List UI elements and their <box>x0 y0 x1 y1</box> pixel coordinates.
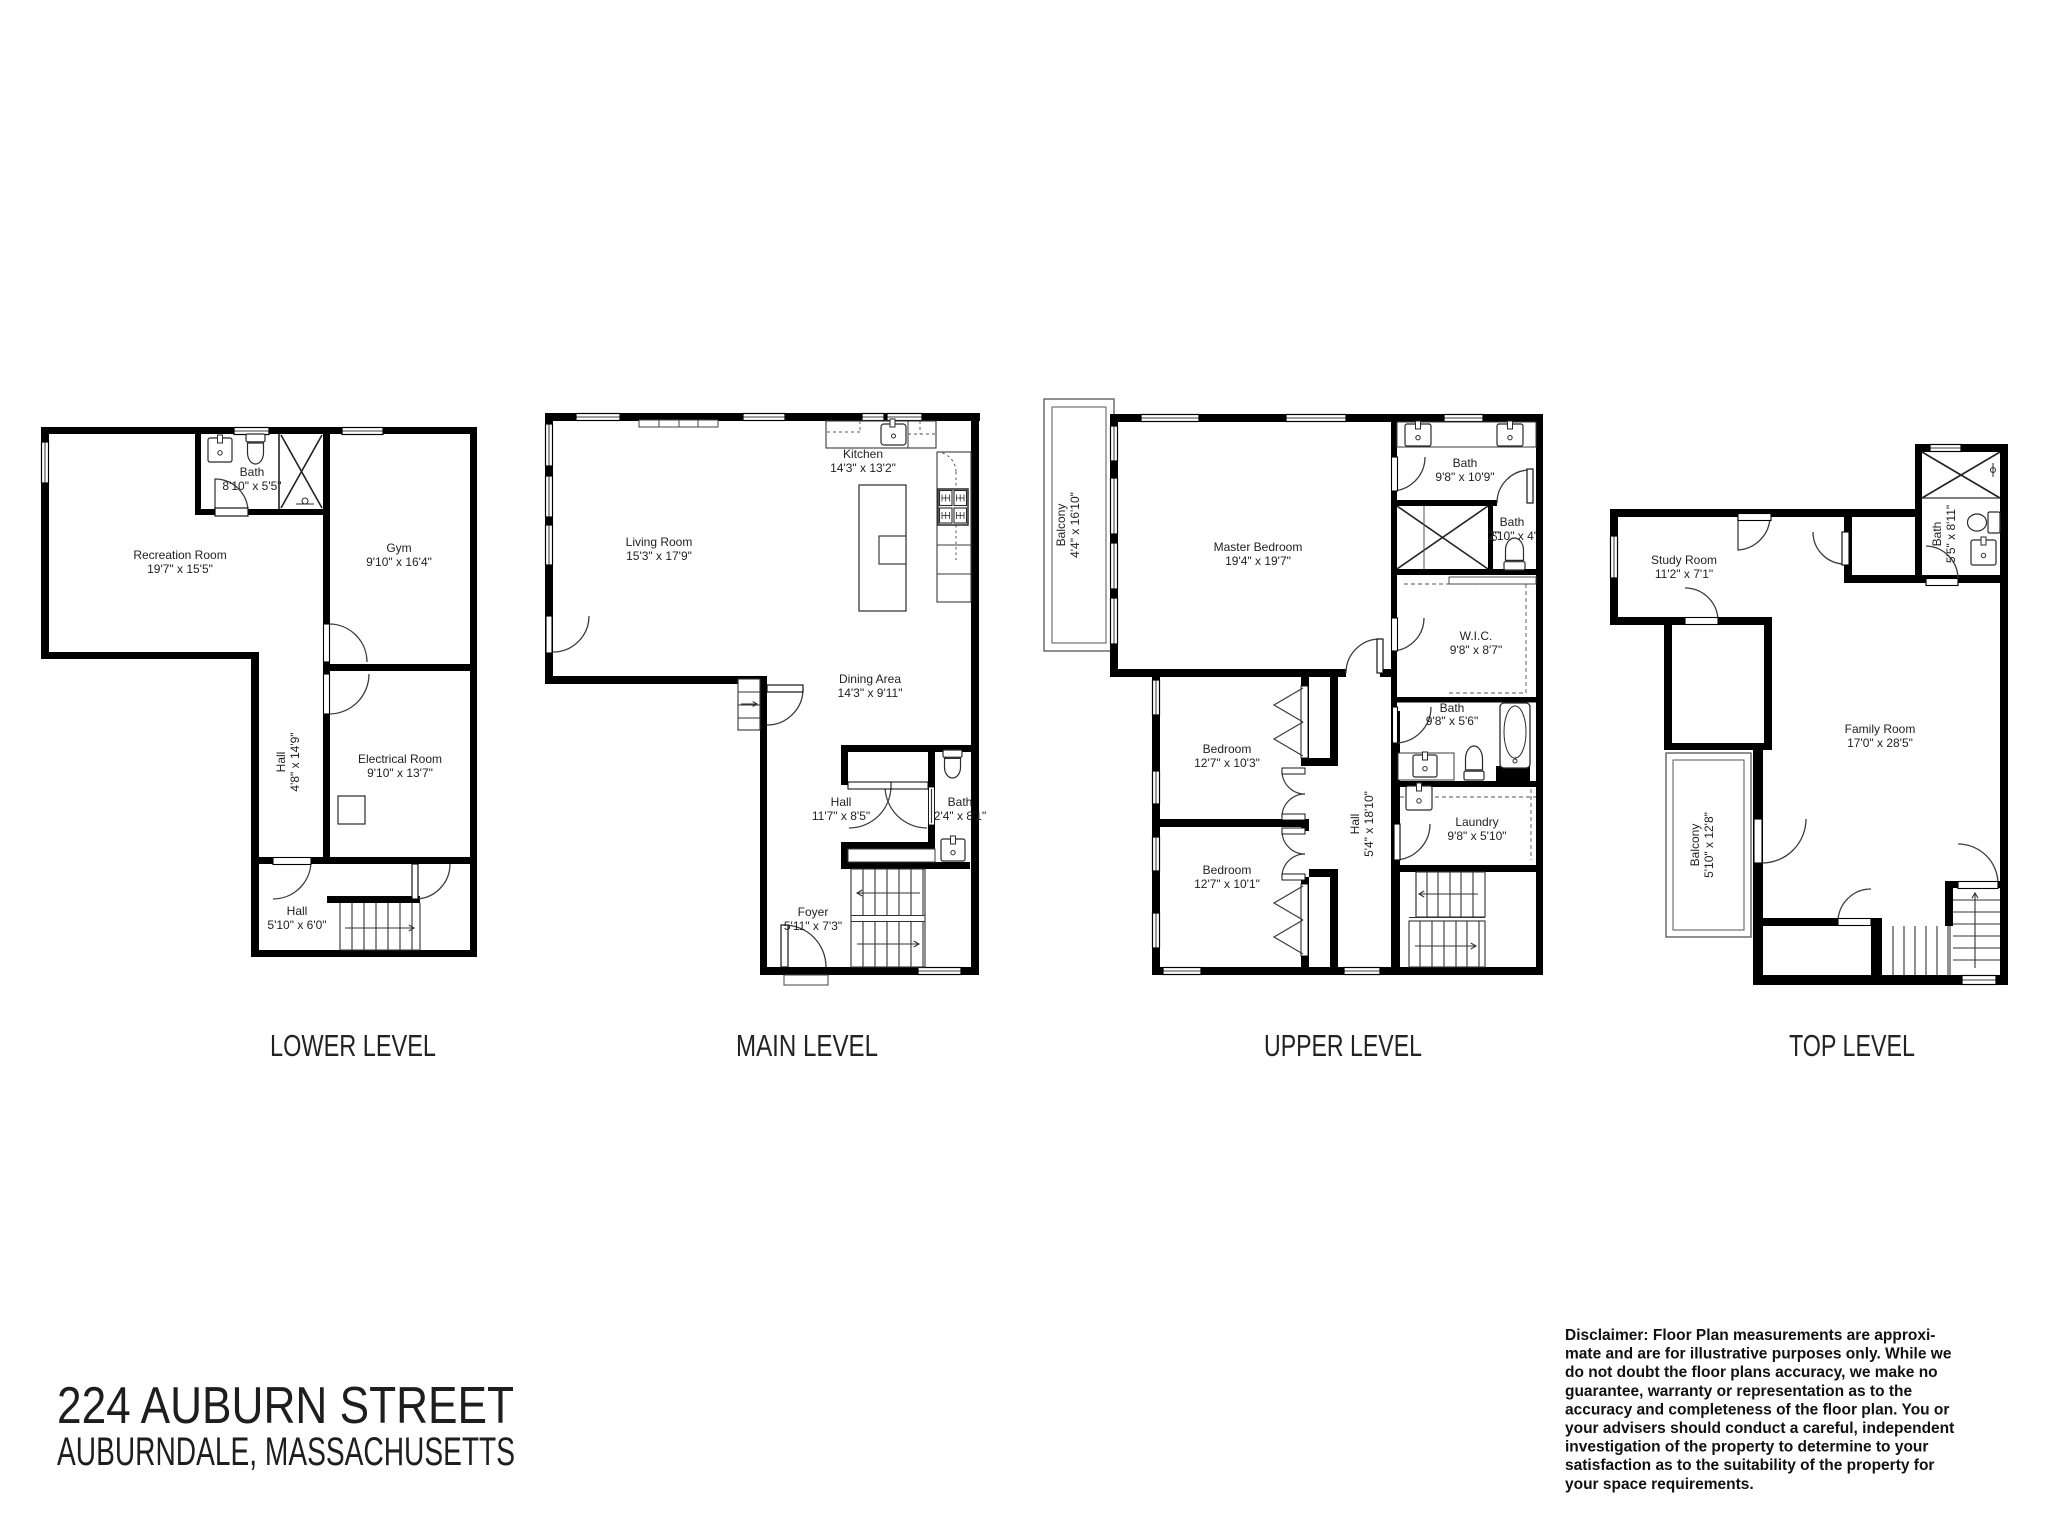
svg-text:LOWER LEVEL: LOWER LEVEL <box>270 1028 436 1063</box>
svg-text:5'10" x 6'0": 5'10" x 6'0" <box>267 918 326 932</box>
svg-text:5'4" x 18'10": 5'4" x 18'10" <box>1362 791 1376 857</box>
svg-text:2'10" x 4': 2'10" x 4' <box>1488 529 1536 543</box>
svg-text:9'8" x 5'10": 9'8" x 5'10" <box>1447 829 1506 843</box>
svg-text:4'8" x 14'9": 4'8" x 14'9" <box>288 732 302 791</box>
svg-text:11'2" x 7'1": 11'2" x 7'1" <box>1655 567 1713 581</box>
svg-text:do not doubt the floor plans a: do not doubt the floor plans accuracy, w… <box>1565 1364 1938 1381</box>
svg-text:19'4" x 19'7": 19'4" x 19'7" <box>1225 554 1291 568</box>
svg-text:Bath: Bath <box>1930 522 1944 547</box>
svg-text:UPPER LEVEL: UPPER LEVEL <box>1264 1028 1422 1063</box>
svg-text:14'3" x 9'11": 14'3" x 9'11" <box>838 686 903 700</box>
svg-text:Bath: Bath <box>1500 515 1525 529</box>
svg-text:investigation of the property: investigation of the property to determi… <box>1565 1439 1928 1456</box>
svg-text:Study Room: Study Room <box>1651 553 1717 567</box>
svg-text:Family Room: Family Room <box>1845 722 1916 736</box>
svg-text:satisfaction as to the suitabi: satisfaction as to the suitability of th… <box>1565 1457 1934 1474</box>
svg-text:MAIN LEVEL: MAIN LEVEL <box>736 1028 878 1063</box>
svg-text:Master Bedroom: Master Bedroom <box>1214 540 1303 554</box>
svg-text:2'4" x 8'1": 2'4" x 8'1" <box>934 809 986 823</box>
svg-text:Bedroom: Bedroom <box>1203 863 1252 877</box>
svg-text:9'8" x 5'6": 9'8" x 5'6" <box>1426 714 1478 728</box>
svg-text:Bath: Bath <box>1453 456 1478 470</box>
svg-text:Dining Area: Dining Area <box>839 672 901 686</box>
svg-text:17'0" x 28'5": 17'0" x 28'5" <box>1847 736 1913 750</box>
svg-text:19'7" x 15'5": 19'7" x 15'5" <box>147 562 213 576</box>
svg-text:mate and are for illustrative: mate and are for illustrative purposes o… <box>1565 1346 1952 1363</box>
svg-text:Bath: Bath <box>1440 701 1465 715</box>
svg-text:Balcony: Balcony <box>1688 824 1702 867</box>
svg-text:Recreation Room: Recreation Room <box>133 548 226 562</box>
svg-text:Laundry: Laundry <box>1455 815 1498 829</box>
svg-text:Living Room: Living Room <box>626 535 693 549</box>
svg-text:your advisers should conduct a: your advisers should conduct a careful, … <box>1565 1420 1954 1437</box>
svg-text:Bath: Bath <box>948 795 973 809</box>
svg-text:9'8" x 8'7": 9'8" x 8'7" <box>1450 643 1502 657</box>
svg-text:224 AUBURN STREET: 224 AUBURN STREET <box>57 1377 514 1435</box>
svg-text:Hall: Hall <box>274 752 288 773</box>
svg-text:your space requirements.: your space requirements. <box>1565 1476 1754 1493</box>
svg-text:4'4" x 16'10": 4'4" x 16'10" <box>1068 492 1082 558</box>
svg-text:TOP LEVEL: TOP LEVEL <box>1789 1028 1915 1063</box>
svg-text:Hall: Hall <box>1348 814 1362 835</box>
svg-text:9'8" x 10'9": 9'8" x 10'9" <box>1435 470 1494 484</box>
svg-text:W.I.C.: W.I.C. <box>1460 629 1493 643</box>
svg-text:14'3" x 13'2": 14'3" x 13'2" <box>830 461 896 475</box>
svg-text:5'11" x 7'3": 5'11" x 7'3" <box>784 919 842 933</box>
svg-text:8'10" x 5'5": 8'10" x 5'5" <box>222 479 281 493</box>
svg-text:12'7" x 10'3": 12'7" x 10'3" <box>1194 756 1260 770</box>
svg-text:AUBURNDALE, MASSACHUSETTS: AUBURNDALE, MASSACHUSETTS <box>57 1430 515 1474</box>
svg-text:Hall: Hall <box>831 795 852 809</box>
svg-text:accuracy and completeness of t: accuracy and completeness of the floor p… <box>1565 1401 1949 1418</box>
svg-text:5'5" x 8'11": 5'5" x 8'11" <box>1944 505 1958 563</box>
svg-text:15'3" x 17'9": 15'3" x 17'9" <box>626 549 692 563</box>
svg-text:Electrical Room: Electrical Room <box>358 752 442 766</box>
svg-text:guarantee, warranty or represe: guarantee, warranty or representation as… <box>1565 1383 1913 1400</box>
svg-text:11'7" x 8'5": 11'7" x 8'5" <box>812 809 870 823</box>
svg-text:Kitchen: Kitchen <box>843 447 883 461</box>
svg-text:5'10" x 12'8": 5'10" x 12'8" <box>1702 812 1716 878</box>
svg-text:Gym: Gym <box>386 541 411 555</box>
svg-text:12'7" x 10'1": 12'7" x 10'1" <box>1194 877 1260 891</box>
svg-text:9'10" x 16'4": 9'10" x 16'4" <box>366 555 432 569</box>
svg-text:Foyer: Foyer <box>798 905 829 919</box>
svg-text:Bath: Bath <box>240 465 265 479</box>
svg-text:Bedroom: Bedroom <box>1203 742 1252 756</box>
svg-text:Disclaimer: Floor Plan measure: Disclaimer: Floor Plan measurements are … <box>1565 1327 1935 1344</box>
svg-text:9'10" x 13'7": 9'10" x 13'7" <box>367 766 433 780</box>
svg-text:Balcony: Balcony <box>1054 504 1068 547</box>
svg-text:Hall: Hall <box>287 904 308 918</box>
